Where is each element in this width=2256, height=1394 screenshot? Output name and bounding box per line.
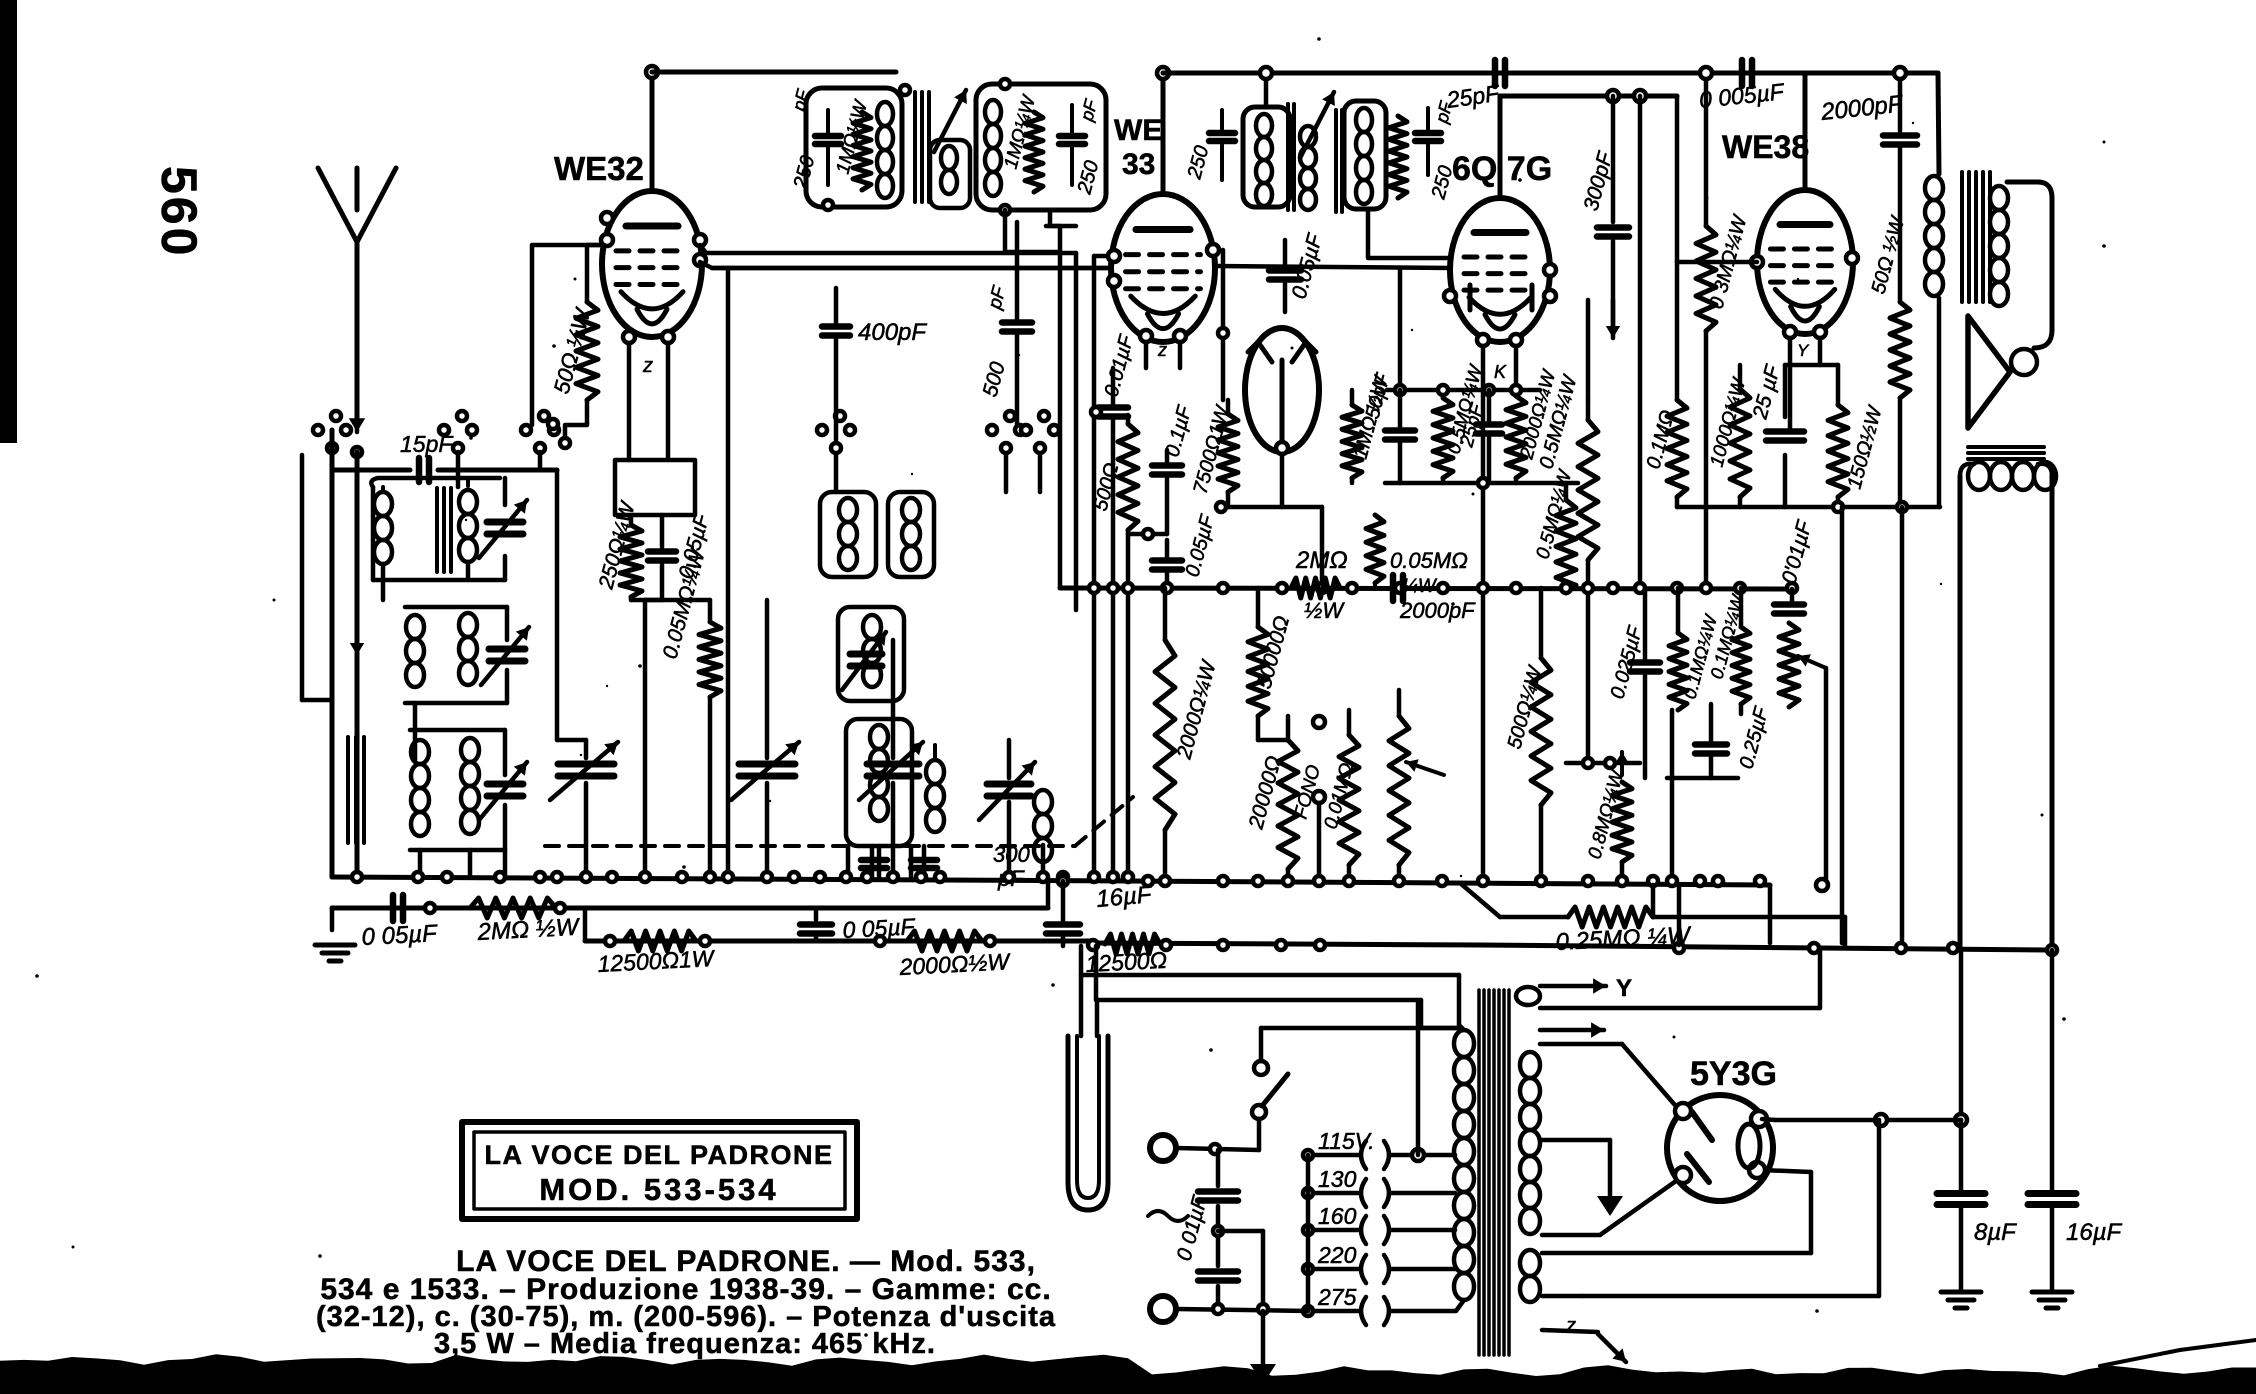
svg-text:8µF: 8µF [1974,1219,2017,1246]
svg-text:½W: ½W [1304,598,1345,623]
svg-text:500: 500 [979,359,1010,399]
svg-text:300: 300 [993,842,1030,867]
svg-text:WE: WE [1114,114,1162,147]
svg-text:WE32: WE32 [554,150,644,187]
svg-text:0.1µF: 0.1µF [1162,402,1197,459]
svg-text:560: 560 [151,166,207,258]
svg-text:33: 33 [1122,148,1155,181]
svg-text:LA VOCE DEL PADRONE: LA VOCE DEL PADRONE [484,1140,833,1170]
svg-text:160: 160 [1318,1203,1357,1229]
svg-text:0 005µF: 0 005µF [1698,78,1787,113]
svg-text:pF: pF [984,283,1011,312]
svg-text:250: 250 [1073,158,1103,197]
svg-text:2000Ω½W: 2000Ω½W [898,948,1012,980]
svg-text:z: z [1565,1315,1576,1337]
svg-text:Y: Y [1616,975,1632,1002]
svg-text:0 05µF: 0 05µF [361,920,439,951]
svg-text:20000Ω: 20000Ω [1244,753,1286,832]
svg-text:z: z [1157,340,1167,360]
svg-text:0.25MΩ ¼W: 0.25MΩ ¼W [1555,922,1693,956]
svg-text:250: 250 [1183,143,1213,182]
svg-text:16µF: 16µF [2066,1219,2123,1246]
svg-text:0.05µF: 0.05µF [1182,511,1220,579]
svg-text:2000pF: 2000pF [1819,90,1905,126]
svg-text:0.5MΩ¼W: 0.5MΩ¼W [1533,466,1577,561]
svg-text:0.01µF: 0.01µF [1101,331,1139,399]
svg-text:2MΩ: 2MΩ [1295,547,1348,574]
svg-text:K: K [1494,362,1507,382]
svg-text:pF: pF [1076,97,1101,124]
svg-text:50pF: 50pF [1362,370,1396,421]
svg-text:50Ω ¼W: 50Ω ¼W [549,304,596,396]
svg-text:2000pF: 2000pF [1399,598,1476,623]
svg-text:150Ω½W: 150Ω½W [1844,402,1888,491]
svg-text:0 01µF: 0 01µF [1173,1193,1213,1264]
svg-text:3,5 W – Media frequenza: 465: 3,5 W – Media frequenza: 465 kHz. [434,1328,936,1360]
svg-text:220: 220 [1317,1242,1357,1268]
svg-text:130: 130 [1318,1166,1357,1192]
svg-text:z: z [642,355,653,377]
svg-text:0'01µF: 0'01µF [1778,517,1817,586]
svg-text:25pF: 25pF [1444,80,1502,113]
svg-text:50Ω ½W: 50Ω ½W [1868,213,1910,297]
svg-text:Y: Y [1797,341,1810,360]
svg-text:12500Ω1W: 12500Ω1W [597,945,716,977]
svg-text:16µF: 16µF [1095,881,1154,913]
svg-text:250: 250 [789,153,819,192]
svg-text:MOD. 533-534: MOD. 533-534 [539,1172,778,1207]
svg-text:WE38: WE38 [1722,129,1809,165]
svg-text:2MΩ ½W: 2MΩ ½W [476,914,582,946]
svg-text:5Y3G: 5Y3G [1690,1055,1777,1093]
svg-text:275: 275 [1317,1284,1357,1310]
svg-text:400pF: 400pF [858,319,927,346]
svg-text:15pF: 15pF [400,431,454,457]
svg-text:25 µF: 25 µF [1748,362,1785,422]
svg-text:¼W: ¼W [1402,576,1438,597]
svg-text:0.05MΩ: 0.05MΩ [1390,548,1468,573]
svg-text:2000Ω¼W: 2000Ω¼W [1172,657,1221,763]
